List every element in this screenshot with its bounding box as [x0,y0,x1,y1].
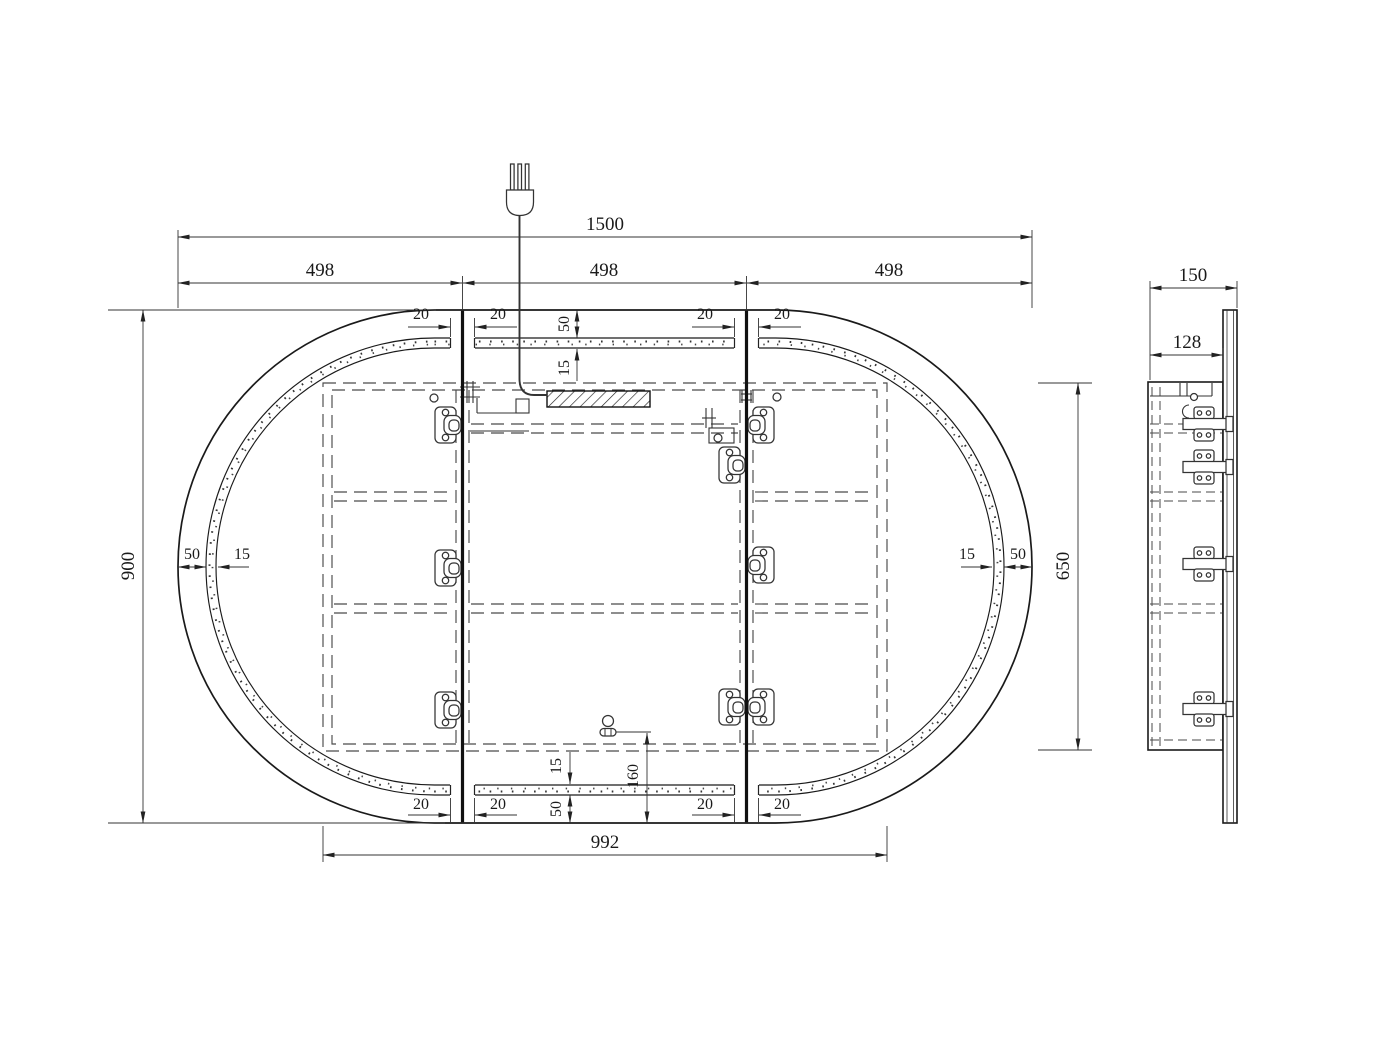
clamp-bracket-right-icon [702,390,752,443]
led-driver-box [547,391,650,407]
dim-door-right-label: 498 [875,260,904,281]
cable-clamp-icon [470,398,529,431]
hinge-icon [748,407,774,443]
hinge-icon [435,692,461,728]
dim-strip-label: 15 [548,758,565,774]
mirror-frame [178,310,1032,823]
dimensions: 1500 498 498 498 900 650 992 20 20 [108,214,1237,862]
dim-gap-label: 20 [774,796,790,813]
hinge-icon [748,547,774,583]
dim-frame-label: 50 [548,801,565,817]
dim-frame-label: 50 [1010,546,1026,563]
dim-gap-label: 20 [490,796,506,813]
dim-strip-label: 15 [234,546,250,563]
dim-gap-label: 20 [413,306,429,323]
door-dividers [463,311,747,822]
hinge-icon [435,550,461,586]
dim-door-center-label: 498 [590,260,619,281]
mirror-cabinet-drawing: 1500 498 498 498 900 650 992 20 20 [0,0,1400,1050]
dim-overall-width-label: 1500 [586,214,624,235]
carcass-hidden-lines [323,383,887,751]
dim-gap-label: 20 [413,796,429,813]
touch-sensor-icon [600,716,651,737]
hinge-icon [748,689,774,725]
dim-carcass-width-label: 992 [591,832,620,853]
hinge-icon [719,689,745,725]
dim-strip-label: 15 [556,360,573,376]
dim-door-left-label: 498 [306,260,335,281]
power-plug-icon [507,164,534,216]
hinge-icon [435,407,461,443]
dim-frame-label: 50 [556,316,573,332]
dim-carcass-depth-label: 128 [1173,332,1202,353]
screw-hole-icon [430,394,438,402]
dim-carcass-height-label: 650 [1053,552,1074,581]
dim-depth-label: 150 [1179,265,1208,286]
dim-gap-label: 20 [490,306,506,323]
hinge-icon [719,447,745,483]
dim-overall-height-label: 900 [118,552,139,581]
screw-hole-icon [773,393,781,401]
screw-hole-icon [714,434,722,442]
hinges-front [435,407,774,728]
dim-gap-label: 20 [697,796,713,813]
shelf-hidden-lines [334,424,875,613]
dim-frame-label: 50 [184,546,200,563]
side-view [1148,310,1237,823]
dim-gap-label: 20 [697,306,713,323]
power-cable [520,216,548,395]
drawing-page: 1500 498 498 498 900 650 992 20 20 [0,0,1400,1050]
dim-strip-label: 15 [959,546,975,563]
dim-sensor-offset-label: 160 [625,764,642,788]
dim-gap-label: 20 [774,306,790,323]
